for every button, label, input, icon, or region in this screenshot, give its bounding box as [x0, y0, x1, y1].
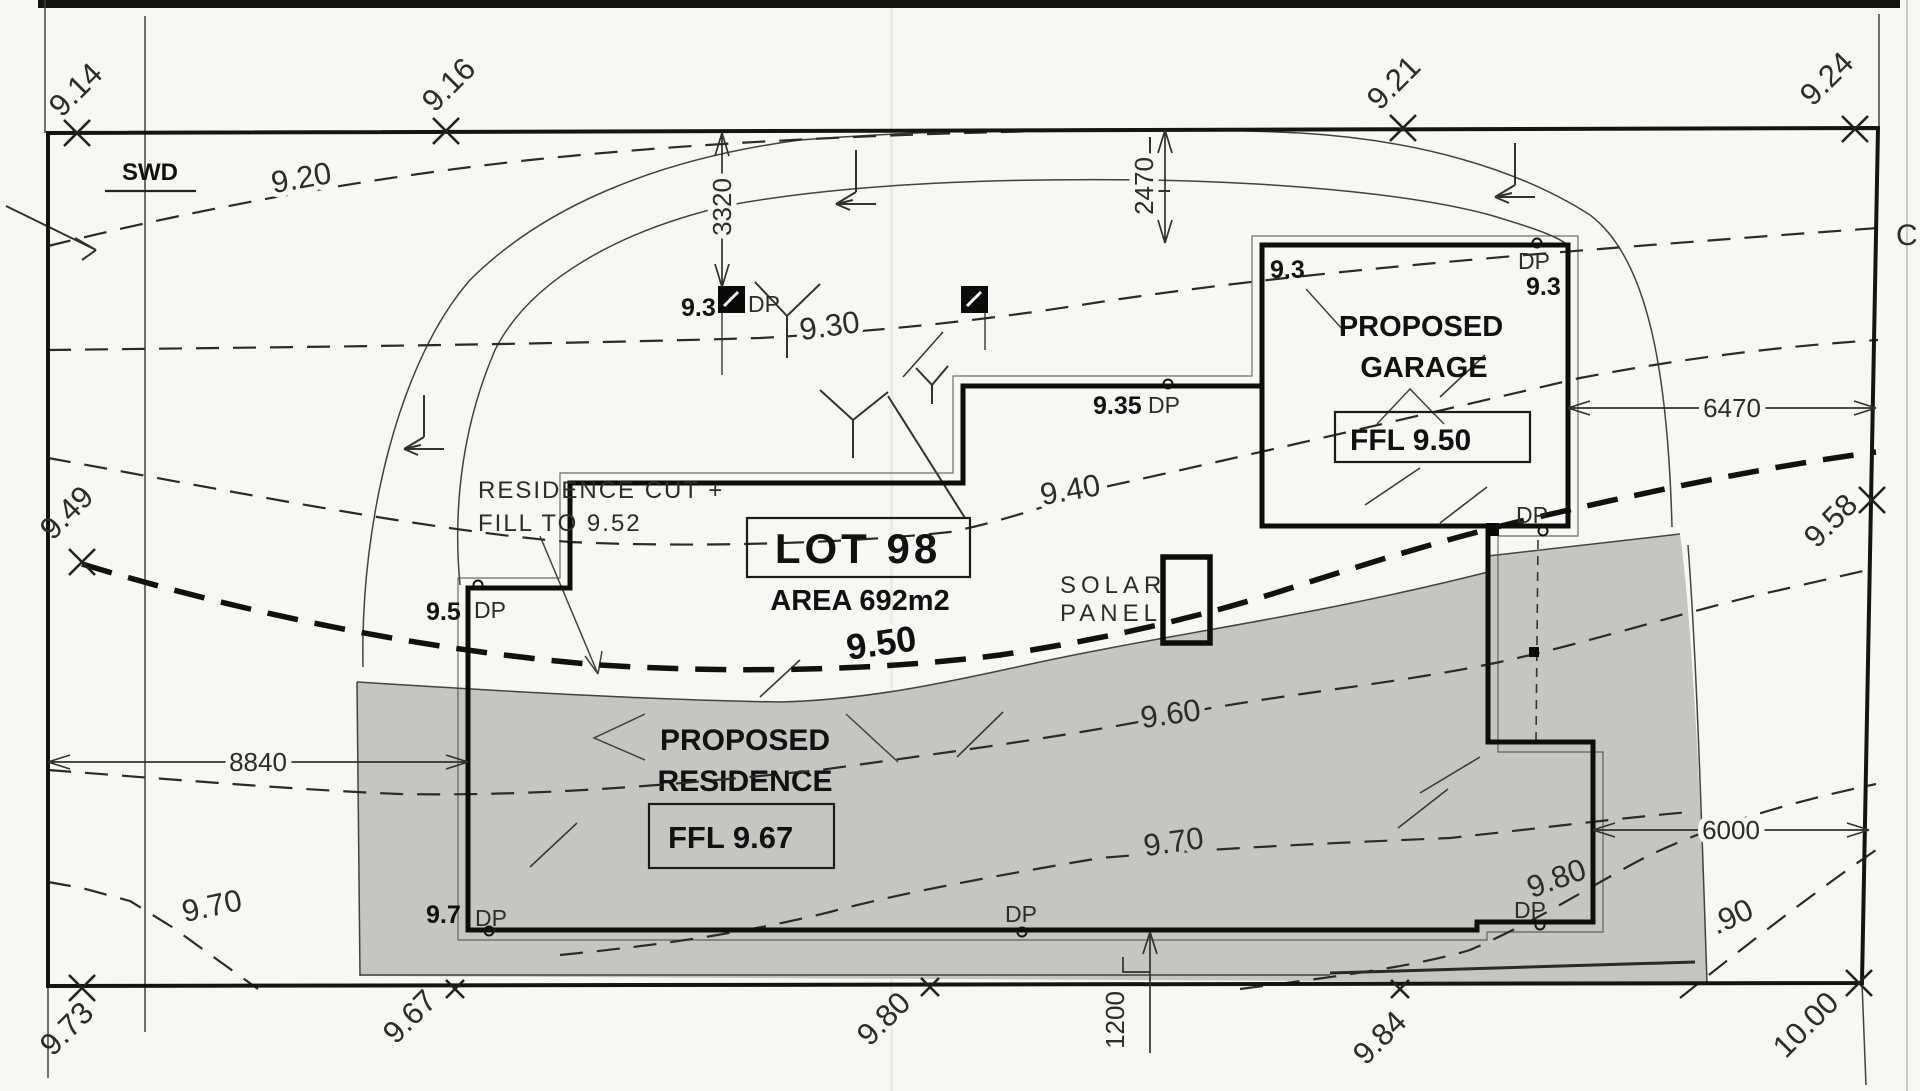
res-sw-dp: DP	[475, 905, 507, 931]
pit1-dp: DP	[748, 291, 780, 317]
south-wall-dp: DP	[1005, 901, 1037, 927]
garage-ne-dp: DP	[1518, 248, 1550, 274]
contour-label-9-20: 9.20	[268, 155, 334, 200]
corner-square-icon	[1486, 523, 1499, 536]
garage-label-line1: PROPOSED	[1339, 311, 1503, 343]
spot-9-14: 9.14	[42, 56, 109, 123]
lot-area: AREA 692m2	[770, 585, 949, 617]
contour-9-20	[48, 129, 1440, 246]
dim-8840: 8840	[229, 747, 287, 777]
swd-label: SWD	[122, 159, 178, 186]
garage-ne-level: 9.3	[1526, 273, 1561, 301]
garage-label-line2: GARAGE	[1360, 352, 1487, 384]
spot-10-00: 10.00	[1766, 985, 1846, 1065]
solar-label-line1: SOLAR	[1060, 572, 1166, 599]
contour-label-9-30: 9.30	[797, 304, 862, 347]
dim-1200: 1200	[1100, 991, 1130, 1049]
site-plan-page: PROPOSED RESIDENCE SOLAR PANEL	[0, 0, 1920, 1091]
solar-label-line2: PANEL	[1060, 600, 1162, 627]
garage-se-dp: DP	[1516, 502, 1548, 528]
lot-title: LOT 98	[775, 525, 941, 572]
drain-dot-icon	[1529, 647, 1539, 657]
wall-mid-level: 9.35	[1093, 392, 1142, 420]
wall-mid-dp: DP	[1148, 392, 1180, 418]
res-nw-level: 9.5	[426, 598, 461, 626]
contour-label-street-9-70: 9.70	[179, 882, 245, 929]
spot-9-80: 9.80	[850, 985, 917, 1052]
contour-label-9-40: 9.40	[1037, 467, 1103, 512]
pit1-level: 9.3	[681, 294, 716, 322]
dim-6000: 6000	[1702, 815, 1760, 845]
page-edge-text: C	[1896, 219, 1918, 252]
cut-note-line2: FILL TO 9.52	[478, 510, 642, 537]
spot-9-49: 9.49	[33, 479, 100, 546]
res-nw-dp: DP	[474, 597, 506, 623]
dim-2470: 2470	[1129, 157, 1159, 215]
res-se-dp: DP	[1514, 897, 1546, 923]
res-sw-level: 9.7	[426, 901, 461, 929]
residence-ffl: FFL 9.67	[668, 820, 793, 855]
site-plan-drawing: PROPOSED RESIDENCE SOLAR PANEL	[0, 0, 1920, 1091]
contour-9-90	[1680, 850, 1876, 998]
spot-9-58: 9.58	[1797, 487, 1864, 554]
residence-label-line1: PROPOSED	[660, 724, 830, 757]
contour-label-9-50: 9.50	[844, 617, 919, 667]
garage-ffl: FFL 9.50	[1350, 424, 1471, 457]
spot-9-16: 9.16	[415, 51, 482, 118]
spot-9-24: 9.24	[1793, 45, 1860, 112]
contour-label-90: .90	[1705, 892, 1759, 942]
cut-note-line1: RESIDENCE CUT +	[478, 477, 724, 504]
dim-3320: 3320	[707, 178, 737, 236]
dim-6470: 6470	[1703, 393, 1761, 423]
residence-label-line2: RESIDENCE	[657, 765, 832, 798]
street-flow-arrow-icon	[6, 206, 96, 260]
spot-9-73: 9.73	[33, 995, 100, 1062]
spot-9-84: 9.84	[1346, 1004, 1413, 1071]
spot-9-67: 9.67	[376, 983, 443, 1050]
spot-9-21: 9.21	[1360, 49, 1427, 116]
solar-panel-rect	[1163, 557, 1210, 643]
garage-nw-level: 9.3	[1270, 256, 1305, 284]
